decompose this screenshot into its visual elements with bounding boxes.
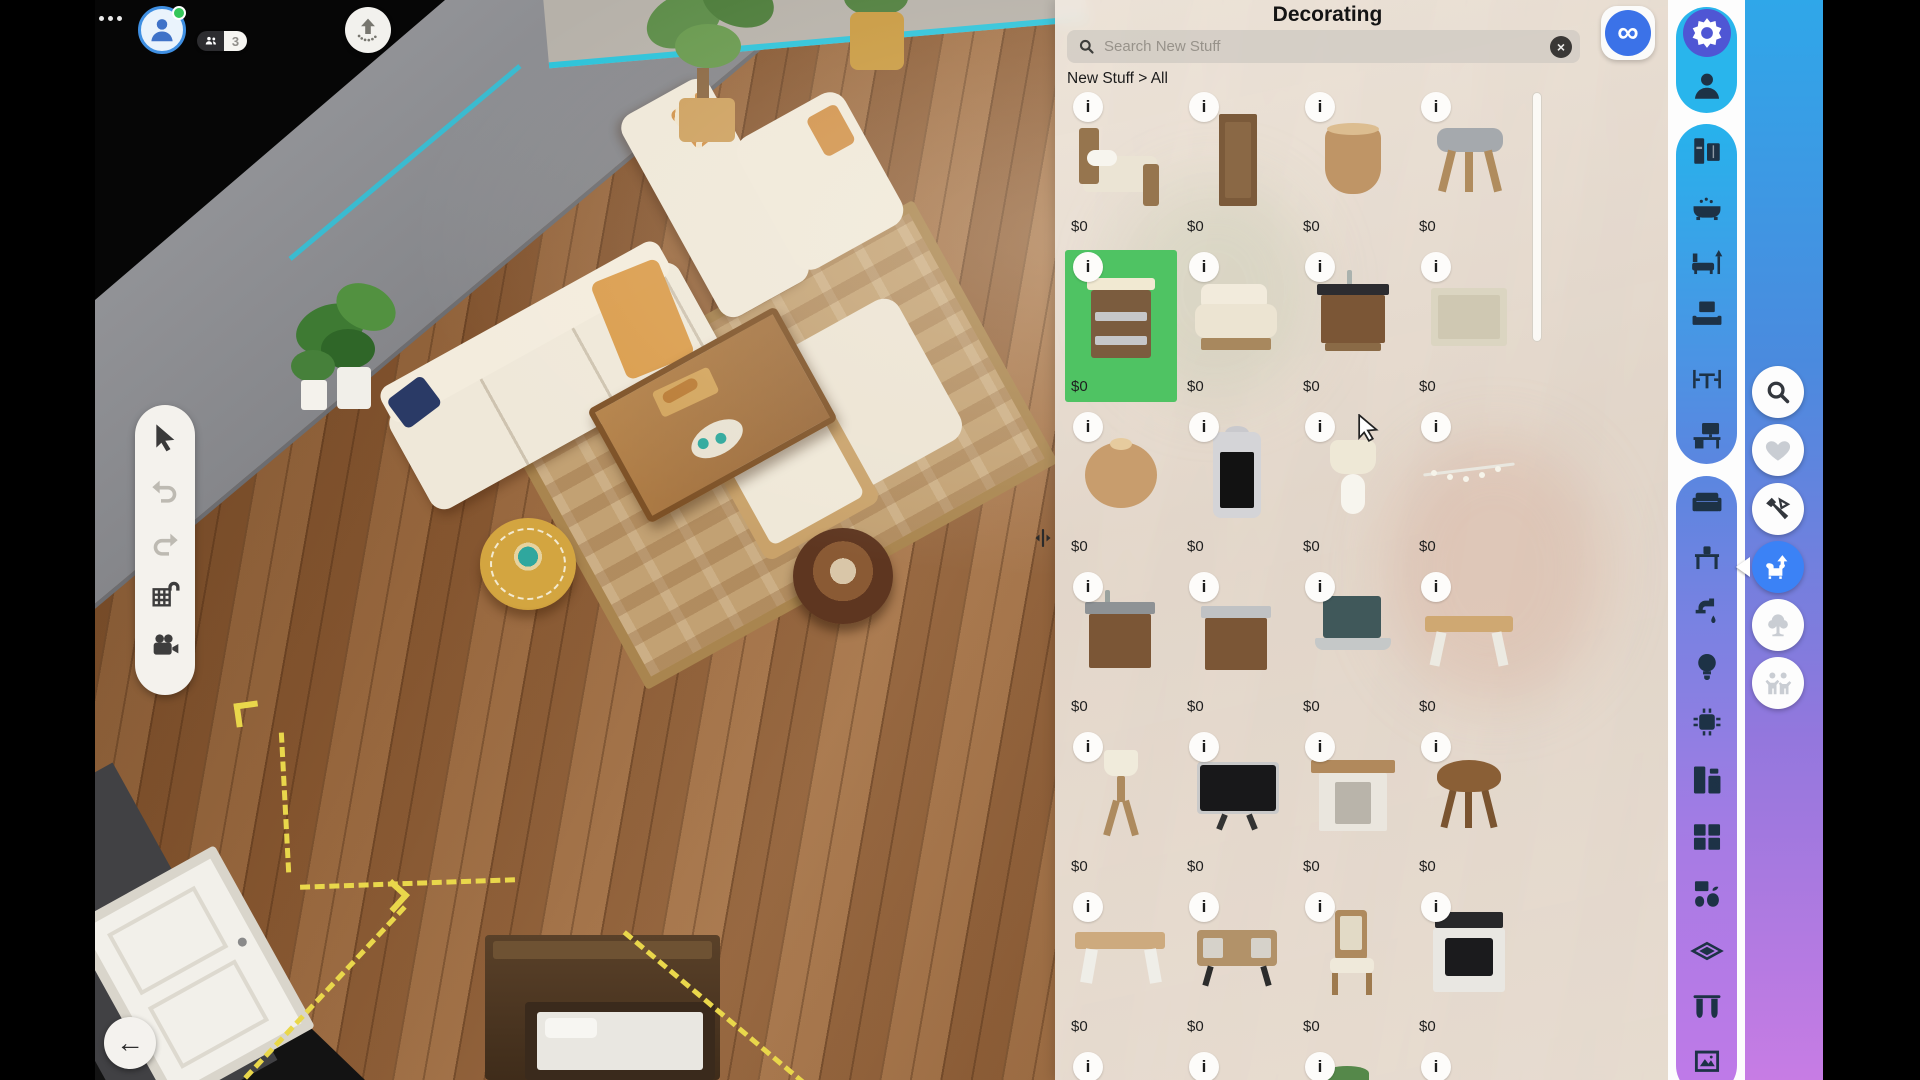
- category-surfaces[interactable]: [1668, 535, 1745, 579]
- category-electronics[interactable]: [1668, 700, 1745, 744]
- wall-art-icon: [1690, 1045, 1724, 1079]
- farmhouse-bench-thumbnail-part: [1425, 616, 1513, 632]
- category-rugs[interactable]: [1668, 929, 1745, 973]
- category-bedroom[interactable]: [1668, 240, 1745, 284]
- television-thumbnail-part: [1216, 813, 1228, 830]
- item-info-button[interactable]: i: [1073, 572, 1103, 602]
- item-price: $0: [1419, 378, 1436, 395]
- catalog-item-potted-plant[interactable]: i: [1297, 1050, 1409, 1080]
- kitchen-icon: [1690, 134, 1724, 168]
- single-bed-thumbnail-part: [1087, 150, 1117, 166]
- category-bathroom[interactable]: [1668, 185, 1745, 229]
- item-info-button[interactable]: i: [1421, 412, 1451, 442]
- undo-icon: [149, 474, 181, 506]
- catalog-item-dining-chair[interactable]: i$0: [1297, 890, 1409, 1042]
- item-price: $0: [1071, 378, 1088, 395]
- item-price: $0: [1419, 538, 1436, 555]
- item-price: $0: [1419, 1018, 1436, 1035]
- item-info-button[interactable]: i: [1421, 732, 1451, 762]
- build-icon: [1763, 494, 1793, 524]
- clear-search-button[interactable]: ×: [1550, 36, 1572, 58]
- media-console-thumbnail-part: [1202, 966, 1213, 987]
- gas-range-thumbnail-part: [1445, 938, 1493, 976]
- comfort-icon: [1690, 485, 1724, 519]
- coffee-table-thumbnail-part: [1144, 948, 1162, 984]
- catalog-item-planter-pot[interactable]: i$0: [1297, 90, 1409, 242]
- edit-toolbar: [135, 405, 195, 695]
- cursor-icon: [149, 421, 181, 453]
- floor-lamp-thumbnail-part: [1104, 750, 1138, 776]
- panel-resize-handle[interactable]: [1031, 524, 1055, 552]
- catalog-item-laptop[interactable]: i$0: [1297, 570, 1409, 722]
- item-info-button[interactable]: i: [1305, 92, 1335, 122]
- category-wall-art[interactable]: [1668, 1040, 1745, 1080]
- build-guide-arrow: [233, 700, 260, 727]
- item-info-button[interactable]: i: [1421, 92, 1451, 122]
- catalog-scrollbar-thumb[interactable]: [1532, 92, 1542, 342]
- household-count: 3: [224, 31, 247, 51]
- study-icon: [1690, 418, 1724, 452]
- surfaces-icon: [1690, 540, 1724, 574]
- floor-up-button[interactable]: [345, 7, 391, 53]
- catalog-panel: Decorating × New Stuff > All i$0i$0i$0i$…: [1055, 0, 1668, 1080]
- category-plumbing[interactable]: [1668, 590, 1745, 634]
- kitchen-sink-cabinet-thumbnail-part: [1085, 602, 1155, 614]
- item-price: $0: [1071, 858, 1088, 875]
- breadcrumb[interactable]: New Stuff > All: [1067, 70, 1168, 88]
- media-console-thumbnail-part: [1251, 938, 1271, 958]
- catalog-item-ornate-end-table[interactable]: i$0: [1413, 730, 1525, 882]
- item-info-button[interactable]: i: [1305, 412, 1335, 442]
- item-info-button[interactable]: i: [1305, 732, 1335, 762]
- living-room-icon: [1690, 298, 1724, 332]
- dining-chair-thumbnail-part: [1332, 973, 1338, 995]
- catalog-item-television[interactable]: i$0: [1181, 730, 1293, 882]
- floor-lamp-thumbnail-part: [1117, 776, 1125, 802]
- item-price: $0: [1303, 698, 1320, 715]
- item-info-button[interactable]: i: [1073, 412, 1103, 442]
- mouse-cursor: [1357, 414, 1383, 444]
- rugs-icon: [1690, 934, 1724, 968]
- item-price: $0: [1187, 858, 1204, 875]
- household-badge[interactable]: 3: [197, 31, 247, 51]
- person-icon: [147, 15, 177, 45]
- kitchen-sink-cabinet-thumbnail-part: [1089, 614, 1151, 668]
- item-price: $0: [1303, 218, 1320, 235]
- media-console-thumbnail-part: [1203, 938, 1223, 958]
- catalog-item-catalog-item[interactable]: i: [1181, 1050, 1293, 1080]
- round-pouf-thumbnail-part: [1085, 442, 1157, 508]
- item-info-button[interactable]: i: [1073, 252, 1103, 282]
- item-price: $0: [1071, 1018, 1088, 1035]
- item-info-button[interactable]: i: [1189, 92, 1219, 122]
- catalog-item-floor-lamp[interactable]: i$0: [1065, 730, 1177, 882]
- kitchen-cart-thumbnail-part: [1095, 336, 1147, 345]
- category-sims[interactable]: [1668, 64, 1745, 108]
- kitchen-cart-thumbnail-part: [1091, 290, 1151, 358]
- heart-icon: [1763, 435, 1793, 465]
- dining-chair-thumbnail-part: [1366, 973, 1372, 995]
- back-room-band: [543, 0, 1087, 68]
- catalog-item-wooden-door[interactable]: i$0: [1181, 90, 1293, 242]
- infinity-logo-icon: ∞: [1605, 10, 1651, 56]
- ornate-end-table-thumbnail-part: [1465, 792, 1472, 828]
- catalog-item-kitchen-sink-cabinet[interactable]: i$0: [1065, 570, 1177, 722]
- appliances-icon: [1690, 763, 1724, 797]
- mode-rail: [1745, 0, 1823, 1080]
- item-price: $0: [1071, 218, 1088, 235]
- cushion-stool-thumbnail-part: [1437, 128, 1503, 152]
- counter-cabinet-thumbnail-part: [1205, 618, 1267, 670]
- storage-icon: [1690, 820, 1724, 854]
- single-bed-thumbnail-part: [1143, 164, 1159, 206]
- palm-plant: [635, 0, 805, 146]
- round-pouf-thumbnail-part: [1110, 438, 1132, 450]
- ornate-end-table-thumbnail-part: [1441, 790, 1457, 829]
- catalog-item-catalog-item[interactable]: i: [1413, 1050, 1525, 1080]
- sink-vanity-thumbnail-part: [1325, 343, 1381, 351]
- category-comfort[interactable]: [1668, 480, 1745, 524]
- camera-icon: [149, 630, 181, 662]
- category-study[interactable]: [1668, 413, 1745, 457]
- search-icon: [1077, 37, 1096, 56]
- selected-mode-pointer: [1736, 557, 1750, 577]
- bed-bottom: [525, 1002, 715, 1080]
- television-thumbnail-part: [1200, 765, 1276, 811]
- corner-potted-plant: [830, 0, 920, 76]
- string-lights-thumbnail-part: [1479, 472, 1485, 478]
- app-window: 3 ← Decorating × New Stuff > All i$0i$0i…: [0, 0, 1920, 1080]
- sims-icon: [1690, 69, 1724, 103]
- plumbing-icon: [1690, 595, 1724, 629]
- catalog-item-ornate-mirror[interactable]: i$0: [1181, 410, 1293, 562]
- category-appliances[interactable]: [1668, 758, 1745, 802]
- catalog-item-kitchen-cart[interactable]: i$0: [1065, 250, 1177, 402]
- cushion-stool-thumbnail-part: [1438, 150, 1456, 193]
- item-info-button[interactable]: i: [1189, 572, 1219, 602]
- item-price: $0: [1419, 698, 1436, 715]
- coffee-table-thumbnail-part: [1080, 948, 1098, 984]
- category-decor[interactable]: [1668, 872, 1745, 916]
- item-price: $0: [1419, 218, 1436, 235]
- search-icon: [1763, 377, 1793, 407]
- catalog-item-cushion-stool[interactable]: i$0: [1413, 90, 1525, 242]
- ornate-end-table-thumbnail-part: [1437, 760, 1501, 792]
- item-info-button[interactable]: i: [1305, 572, 1335, 602]
- tree-icon: [1763, 610, 1793, 640]
- laptop-thumbnail-part: [1323, 596, 1381, 638]
- item-info-button[interactable]: i: [1305, 892, 1335, 922]
- string-lights-thumbnail-part: [1463, 476, 1469, 482]
- item-price: $0: [1187, 698, 1204, 715]
- catalog-item-gas-range[interactable]: i$0: [1413, 890, 1525, 1042]
- fireplace-thumbnail-part: [1335, 782, 1371, 824]
- catalog-item-coffee-table[interactable]: i$0: [1065, 890, 1177, 1042]
- decor-icon: [1690, 877, 1724, 911]
- redo-icon: [149, 527, 181, 559]
- catalog-item-loveseat[interactable]: i$0: [1181, 250, 1293, 402]
- item-info-button[interactable]: i: [1189, 892, 1219, 922]
- community-icon: [1763, 668, 1793, 698]
- fireplace-thumbnail-part: [1311, 760, 1395, 773]
- coffee-table-thumbnail-part: [1075, 932, 1165, 949]
- media-console-thumbnail-part: [1260, 966, 1271, 987]
- category-curtains[interactable]: [1668, 986, 1745, 1030]
- up-arrow-icon: [352, 14, 384, 46]
- item-info-button[interactable]: i: [1421, 572, 1451, 602]
- table-lamp-thumbnail-part: [1341, 474, 1365, 514]
- category-storage[interactable]: [1668, 815, 1745, 859]
- decorate-icon: [1763, 552, 1793, 582]
- category-kitchen[interactable]: [1668, 129, 1745, 173]
- catalog-item-fireplace[interactable]: i$0: [1297, 730, 1409, 882]
- item-price: $0: [1303, 538, 1320, 555]
- item-info-button[interactable]: i: [1189, 732, 1219, 762]
- item-price: $0: [1303, 378, 1320, 395]
- string-lights-thumbnail-part: [1495, 466, 1501, 472]
- item-price: $0: [1303, 1018, 1320, 1035]
- dining-chair-thumbnail-part: [1340, 916, 1362, 950]
- item-info-button[interactable]: i: [1073, 92, 1103, 122]
- catalog-item-string-lights[interactable]: i$0: [1413, 410, 1525, 562]
- item-info-button[interactable]: i: [1305, 1052, 1335, 1080]
- item-price: $0: [1187, 1018, 1204, 1035]
- build-settings-icon: [1683, 9, 1731, 57]
- item-price: $0: [1187, 378, 1204, 395]
- bedroom-icon: [1690, 245, 1724, 279]
- string-lights-thumbnail-part: [1431, 470, 1437, 476]
- grid-snap-button[interactable]: [145, 574, 185, 614]
- favorites-button[interactable]: [1752, 424, 1804, 476]
- catalog-item-media-console[interactable]: i$0: [1181, 890, 1293, 1042]
- item-info-button[interactable]: i: [1421, 252, 1451, 282]
- category-lighting[interactable]: [1668, 645, 1745, 689]
- floor-lamp-thumbnail-part: [1103, 800, 1120, 837]
- overflow-menu[interactable]: [99, 16, 122, 21]
- string-lights-thumbnail-part: [1447, 474, 1453, 480]
- item-price: $0: [1303, 858, 1320, 875]
- yellow-pouf: [480, 518, 576, 610]
- build-guide-dash: [279, 732, 291, 872]
- kitchen-cart-thumbnail-part: [1095, 312, 1147, 321]
- farmhouse-bench-thumbnail-part: [1430, 631, 1447, 666]
- laptop-thumbnail-part: [1315, 638, 1391, 650]
- kitchen-cart-thumbnail-part: [1087, 278, 1155, 290]
- planter-pot-thumbnail-part: [1327, 123, 1379, 135]
- catalog-item-table-lamp[interactable]: i$0: [1297, 410, 1409, 562]
- category-living-room[interactable]: [1668, 293, 1745, 337]
- people-icon: [204, 34, 218, 48]
- curtains-icon: [1690, 991, 1724, 1025]
- table-lamp-thumbnail-part: [1330, 440, 1376, 474]
- farmhouse-bench-thumbnail-part: [1492, 631, 1509, 666]
- item-info-button[interactable]: i: [1073, 1052, 1103, 1080]
- search-bar[interactable]: ×: [1067, 30, 1580, 63]
- item-price: $0: [1419, 858, 1436, 875]
- item-info-button[interactable]: i: [1189, 1052, 1219, 1080]
- dining-room-icon: [1690, 360, 1724, 394]
- television-thumbnail-part: [1246, 813, 1258, 830]
- dining-chair-thumbnail-part: [1330, 958, 1374, 973]
- bathroom-icon: [1690, 190, 1724, 224]
- lighting-icon: [1690, 650, 1724, 684]
- item-info-button[interactable]: i: [1189, 252, 1219, 282]
- counter-cabinet-thumbnail-part: [1201, 606, 1271, 618]
- ornate-end-table-thumbnail-part: [1482, 790, 1498, 829]
- catalog-item-sink-vanity[interactable]: i$0: [1297, 250, 1409, 402]
- string-lights-thumbnail-part: [1423, 462, 1515, 476]
- select-tool-button[interactable]: [145, 417, 185, 457]
- door-knob: [236, 936, 248, 948]
- online-status-dot: [172, 6, 186, 20]
- item-info-button[interactable]: i: [1189, 412, 1219, 442]
- category-dining-room[interactable]: [1668, 355, 1745, 399]
- catalog-item-farmhouse-bench[interactable]: i$0: [1413, 570, 1525, 722]
- cushion-stool-thumbnail-part: [1465, 152, 1473, 192]
- logo-button[interactable]: ∞: [1601, 6, 1655, 60]
- camera-button[interactable]: [145, 626, 185, 666]
- item-price: $0: [1071, 538, 1088, 555]
- item-info-button[interactable]: i: [1305, 252, 1335, 282]
- catalog-item-single-bed[interactable]: i$0: [1065, 90, 1177, 242]
- item-info-button[interactable]: i: [1073, 732, 1103, 762]
- ornate-mirror-thumbnail-part: [1220, 452, 1254, 508]
- item-info-button[interactable]: i: [1421, 892, 1451, 922]
- wooden-door-thumbnail-part: [1225, 122, 1251, 198]
- catalog-item-catalog-item[interactable]: i: [1065, 1050, 1177, 1080]
- item-info-button[interactable]: i: [1073, 892, 1103, 922]
- back-arrow-icon: ←: [116, 1027, 144, 1059]
- build-mode-button[interactable]: [1752, 483, 1804, 535]
- redo-button[interactable]: [145, 523, 185, 563]
- item-info-button[interactable]: i: [1421, 1052, 1451, 1080]
- side-plant: [285, 350, 345, 420]
- gridmagnet-icon: [149, 578, 181, 610]
- electronics-icon: [1690, 705, 1724, 739]
- loveseat-thumbnail-part: [1195, 304, 1277, 338]
- panel-title: Decorating: [1055, 3, 1600, 27]
- cushion-stool-thumbnail-part: [1484, 150, 1502, 193]
- item-price: $0: [1187, 538, 1204, 555]
- catalog-item-woven-rug[interactable]: i$0: [1413, 250, 1525, 402]
- build-guide-dash: [300, 877, 515, 890]
- woven-rug-thumbnail-part: [1438, 295, 1500, 339]
- search-button[interactable]: [1752, 366, 1804, 418]
- item-price: $0: [1071, 698, 1088, 715]
- floor-lamp-thumbnail-part: [1122, 800, 1139, 837]
- back-button[interactable]: ←: [104, 1017, 156, 1069]
- decorate-mode-button[interactable]: [1752, 541, 1804, 593]
- catalog-item-counter-cabinet[interactable]: i$0: [1181, 570, 1293, 722]
- catalog-item-round-pouf[interactable]: i$0: [1065, 410, 1177, 562]
- category-build-settings[interactable]: [1668, 11, 1745, 55]
- community-button[interactable]: [1752, 657, 1804, 709]
- item-price: $0: [1187, 218, 1204, 235]
- undo-button[interactable]: [145, 470, 185, 510]
- brown-pouf: [793, 528, 893, 624]
- planter-pot-thumbnail-part: [1325, 126, 1381, 194]
- sink-vanity-thumbnail-part: [1317, 284, 1389, 295]
- search-input[interactable]: [1104, 38, 1550, 55]
- sink-vanity-thumbnail-part: [1321, 295, 1385, 343]
- loveseat-thumbnail-part: [1201, 338, 1271, 350]
- landscaping-button[interactable]: [1752, 599, 1804, 651]
